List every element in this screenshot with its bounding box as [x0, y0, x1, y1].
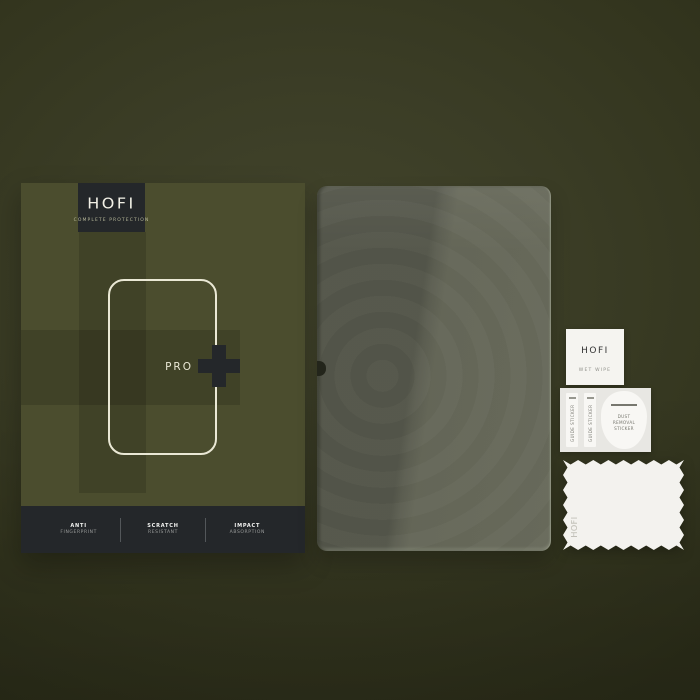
plus-icon-horizontal-bar [198, 359, 240, 373]
wet-wipe-brand: HOFI [581, 346, 609, 356]
dust-removal-sticker: DUST REMOVAL STICKER [601, 391, 647, 449]
brand-logo: HOFI [87, 197, 136, 212]
sticker-sheet: GUIDE STICKER GUIDE STICKER DUST REMOVAL… [560, 388, 651, 452]
feature-impact-absorption: IMPACT ABSORPTION [206, 523, 289, 536]
feature-scratch-resistant: SCRATCH RESISTANT [121, 523, 204, 536]
feature-bar: ANTI FINGERPRINT SCRATCH RESISTANT IMPAC… [21, 506, 305, 553]
feature-anti-fingerprint: ANTI FINGERPRINT [37, 523, 120, 536]
plus-icon [198, 345, 240, 387]
product-photo-stage: HOFI COMPLETE PROTECTION PRO ANTI FINGER… [0, 0, 700, 700]
cloth-brand: HOFI [570, 512, 580, 542]
brand-tagline: COMPLETE PROTECTION [74, 218, 150, 223]
model-label: PRO [153, 361, 193, 373]
camera-notch [317, 361, 326, 376]
wet-wipe-sachet: HOFI WET WIPE [566, 329, 624, 385]
retail-box: HOFI COMPLETE PROTECTION PRO ANTI FINGER… [21, 183, 305, 553]
guide-sticker: GUIDE STICKER [566, 393, 578, 447]
microfiber-cloth: HOFI [563, 460, 684, 550]
microfiber-cloth-wrapper: HOFI [563, 460, 684, 550]
guide-sticker: GUIDE STICKER [584, 393, 596, 447]
tempered-glass-protector [317, 186, 551, 551]
wet-wipe-label: WET WIPE [579, 368, 611, 373]
sticker-pull-line [611, 404, 637, 406]
brand-logo-block: HOFI COMPLETE PROTECTION [78, 183, 145, 232]
